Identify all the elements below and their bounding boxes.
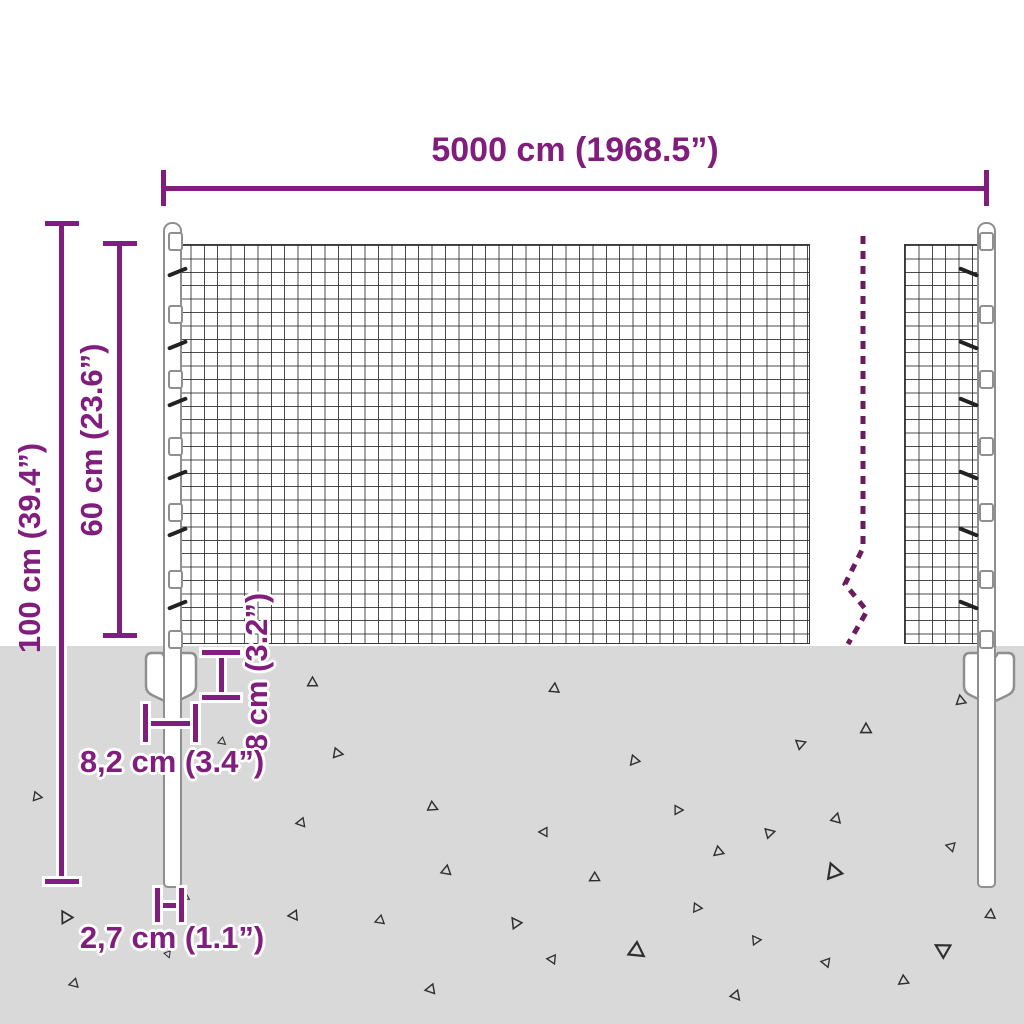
mesh-panel-right [904,244,983,644]
mesh-clip [979,232,994,251]
dim-total-height-cap-top [45,221,79,226]
mesh-clip [979,370,994,389]
dim-mesh-height-cap-top [103,241,137,246]
ground-triangle [547,680,561,694]
ground-triangle [32,790,46,804]
dim-total-height-line [59,223,64,883]
dim-anchor-width-cap-right [193,704,198,742]
dim-mesh-height-line [117,243,122,637]
mesh-clip [168,630,183,649]
dim-post-width-cap-right [179,888,184,922]
dim-mesh-height-label: 60 cm (23.6”) [72,280,112,600]
mesh-clip [168,305,183,324]
dim-anchor-width-line [146,721,196,726]
dim-mesh-height-cap-bottom [103,633,137,638]
ground-triangle [751,933,764,946]
mesh-clip [979,437,994,456]
mesh-clip [168,570,183,589]
mesh-clip [168,437,183,456]
dim-total-height-cap-bottom [45,879,79,884]
dim-width-tick-right [984,170,989,206]
ground-triangle [983,906,997,920]
mesh-clip [979,570,994,589]
dim-anchor-width-label: 8,2 cm (3.4”) [12,744,332,780]
dim-anchor-height-cap-top [202,650,240,655]
mesh-clip [979,630,994,649]
mesh-clip [979,503,994,522]
dim-anchor-width-cap-left [143,704,148,742]
ground-triangle [330,745,345,760]
dim-post-width-cap-left [155,888,160,922]
ground-triangle [438,861,453,876]
ground-triangle [817,955,831,969]
dim-anchor-height-cap-bottom [202,695,240,700]
dim-anchor-height-line [219,652,224,700]
dim-total-height-label: 100 cm (39.4”) [10,388,50,708]
mesh-clip [979,305,994,324]
break-dashed-line [828,230,888,655]
dim-anchor-height-label: 8 cm (3.2”) [237,512,277,832]
ground-triangle [543,952,556,965]
dim-width-label: 5000 cm (1968.5”) [300,131,850,170]
ground-triangle [762,824,778,840]
mesh-clip [168,232,183,251]
mesh-clip [168,503,183,522]
ground-triangle [536,826,548,838]
ground-triangle [421,981,436,996]
ground-triangle [306,675,319,688]
dim-width-tick-left [161,170,166,206]
ground-triangle [859,721,873,735]
ground-triangle [692,901,705,914]
ground-triangle [292,816,306,830]
dim-width-line [163,186,988,191]
dim-post-width-label: 2,7 cm (1.1”) [12,920,332,956]
ground-triangle [674,804,686,816]
ground-triangle [828,809,844,825]
mesh-clip [168,370,183,389]
fence-dimension-diagram: 5000 cm (1968.5”) 100 cm (39.4”) 60 cm (… [0,0,1024,1024]
